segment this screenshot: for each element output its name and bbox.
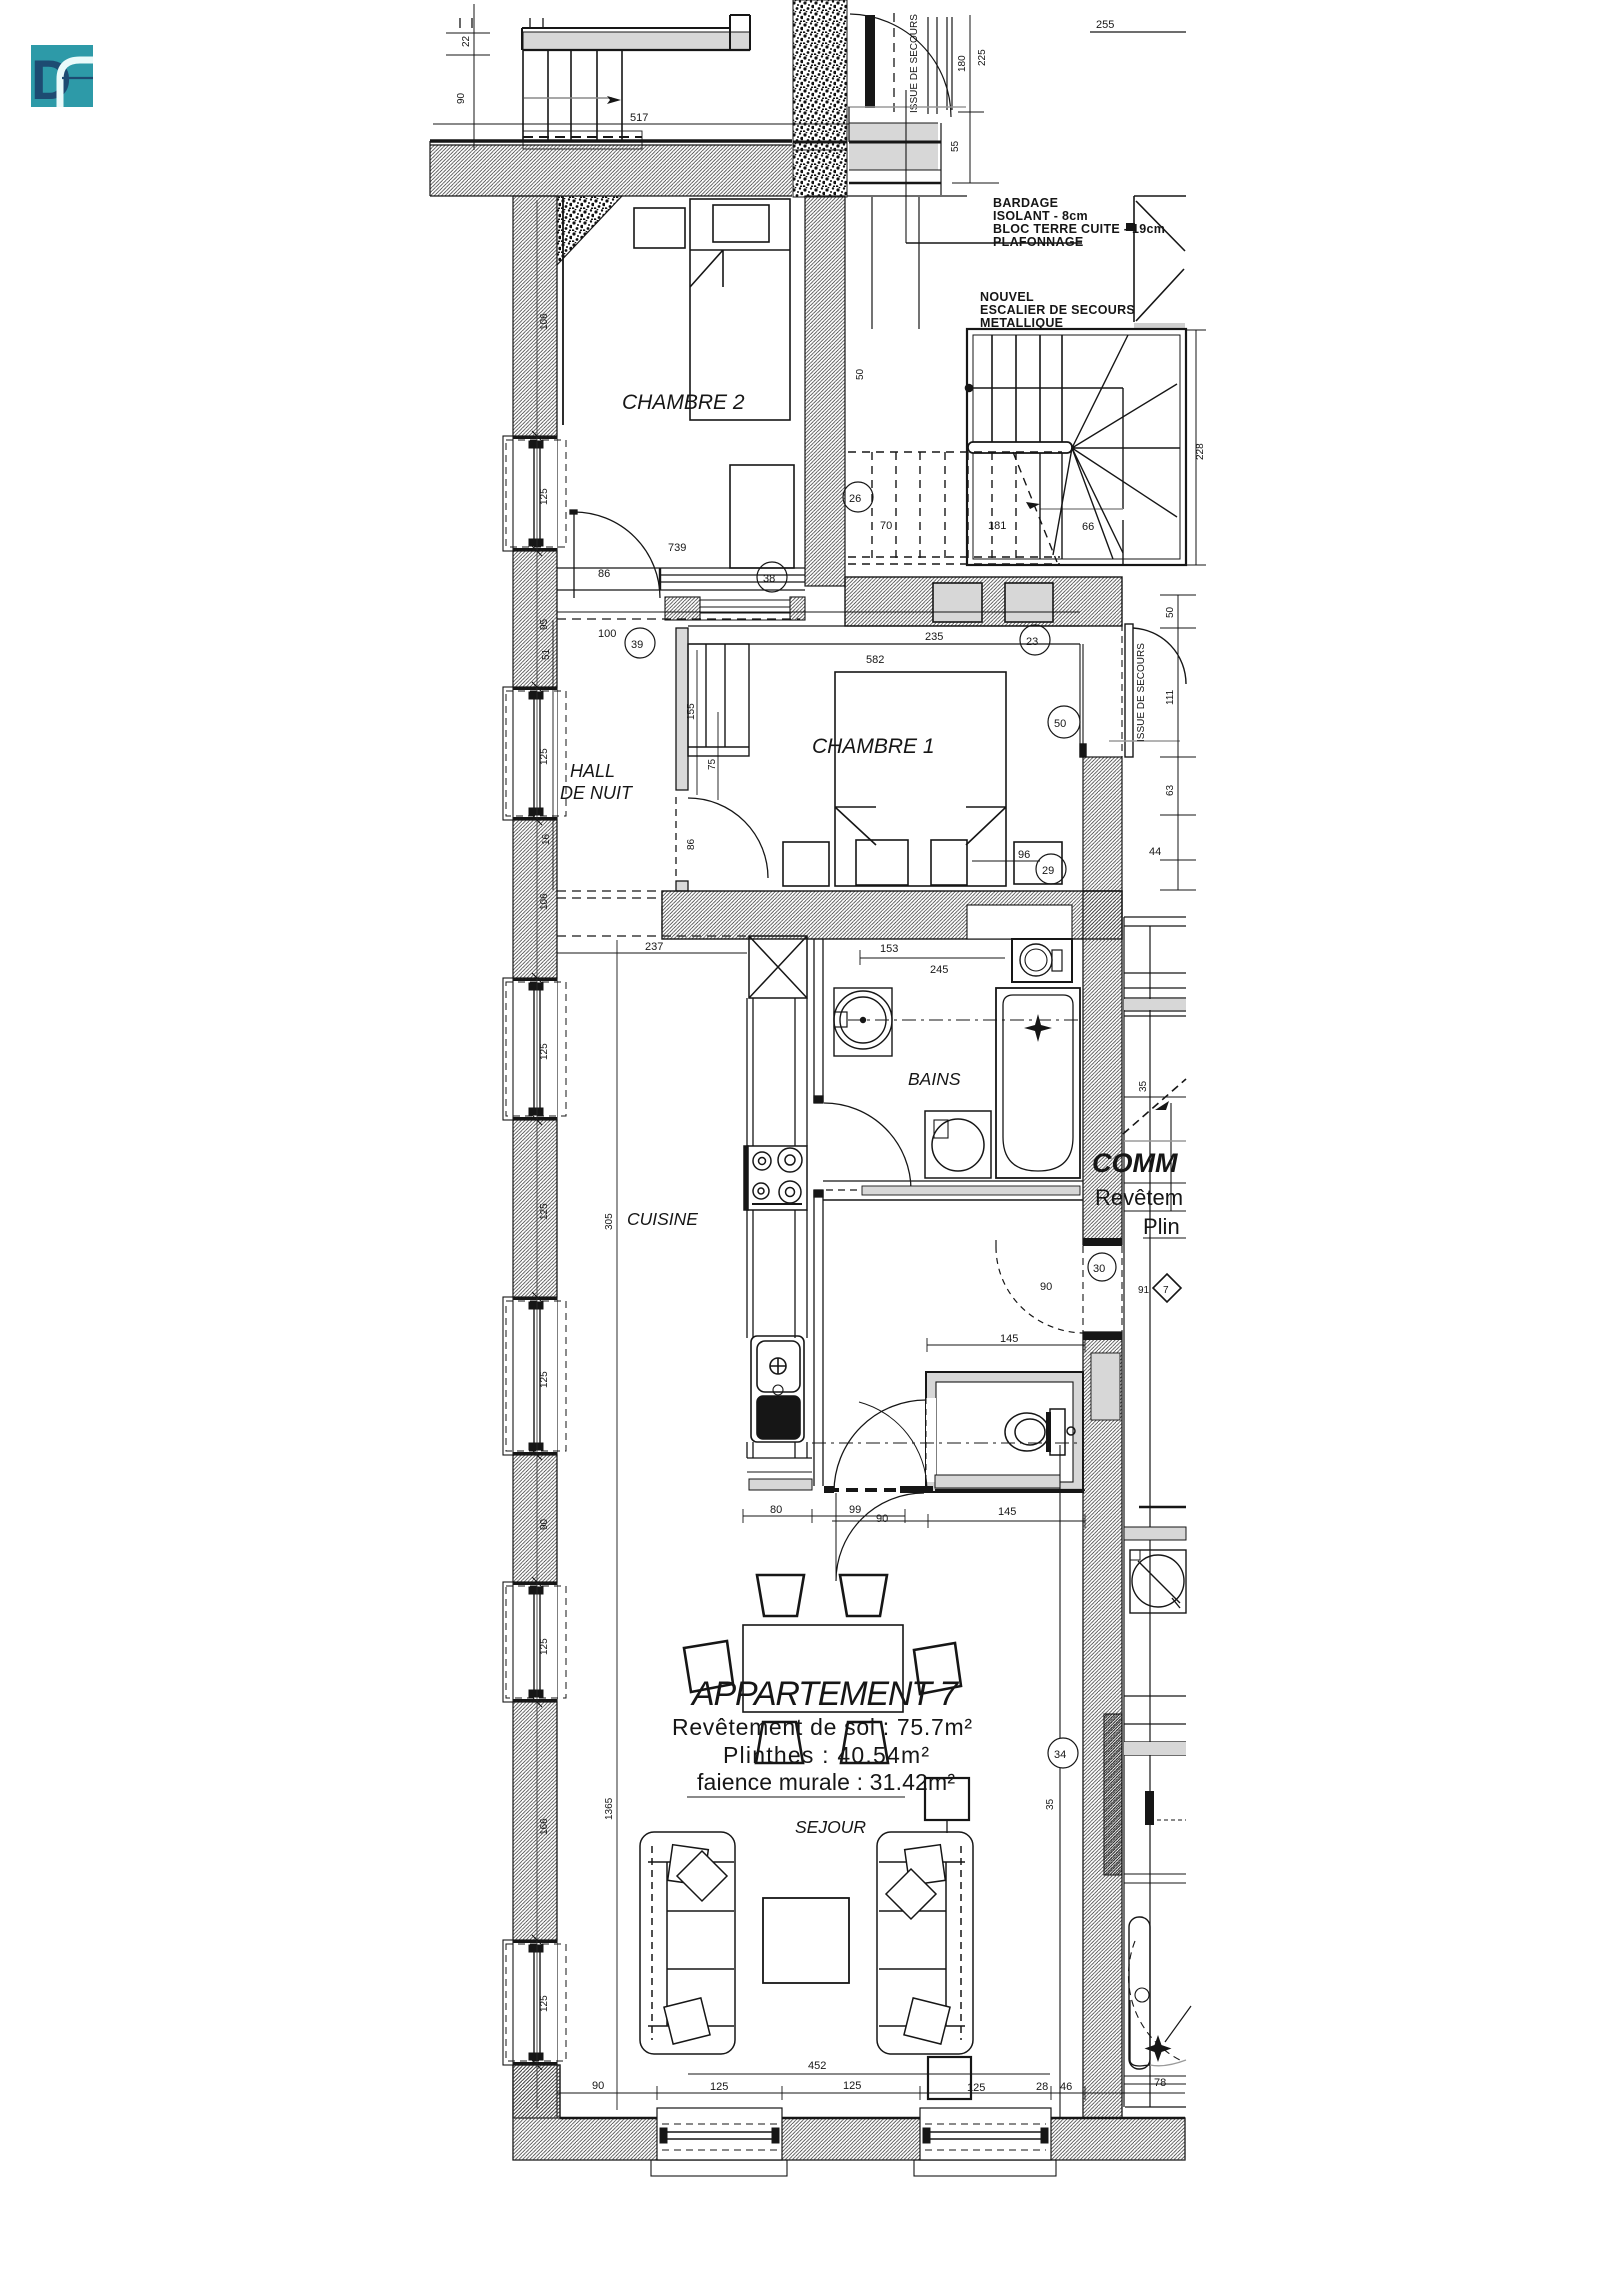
- svg-text:70: 70: [880, 520, 892, 532]
- svg-text:145: 145: [1000, 1333, 1018, 1345]
- svg-text:99: 99: [849, 1504, 861, 1516]
- svg-text:63: 63: [1165, 784, 1176, 796]
- svg-text:BLOC TERRE CUITE - 19cm: BLOC TERRE CUITE - 19cm: [993, 222, 1165, 236]
- svg-text:106: 106: [539, 313, 550, 330]
- svg-text:APPARTEMENT 7: APPARTEMENT 7: [690, 1675, 959, 1713]
- svg-text:452: 452: [808, 2060, 826, 2072]
- svg-text:78: 78: [1154, 2077, 1166, 2089]
- svg-text:225: 225: [977, 49, 988, 66]
- svg-text:90: 90: [876, 1513, 888, 1525]
- svg-text:35: 35: [1138, 1080, 1149, 1092]
- svg-text:55: 55: [950, 140, 961, 152]
- svg-text:582: 582: [866, 654, 884, 666]
- svg-text:155: 155: [686, 703, 697, 720]
- svg-text:DE NUIT: DE NUIT: [560, 783, 634, 803]
- svg-text:80: 80: [770, 1504, 782, 1516]
- svg-text:30: 30: [1093, 1263, 1105, 1275]
- svg-text:153: 153: [880, 943, 898, 955]
- svg-text:75: 75: [707, 758, 718, 770]
- svg-text:125: 125: [843, 2080, 861, 2092]
- svg-text:NOUVEL: NOUVEL: [980, 290, 1034, 304]
- svg-text:125: 125: [539, 1203, 550, 1220]
- svg-text:Revêtement de sol : 75.7m²: Revêtement de sol : 75.7m²: [672, 1714, 972, 1740]
- svg-text:180: 180: [957, 55, 968, 72]
- svg-text:34: 34: [1054, 1749, 1066, 1761]
- svg-text:90: 90: [456, 92, 467, 104]
- svg-text:145: 145: [998, 1506, 1016, 1518]
- svg-text:100: 100: [598, 628, 616, 640]
- svg-text:50: 50: [855, 368, 866, 380]
- svg-text:CUISINE: CUISINE: [627, 1209, 698, 1229]
- svg-text:29: 29: [1042, 865, 1054, 877]
- svg-text:111: 111: [1165, 689, 1176, 705]
- svg-text:28: 28: [1036, 2081, 1048, 2093]
- svg-text:86: 86: [686, 838, 697, 850]
- svg-text:ISSUE DE SECOURS: ISSUE DE SECOURS: [1136, 643, 1147, 742]
- svg-text:237: 237: [645, 941, 663, 953]
- svg-text:51: 51: [541, 648, 552, 660]
- svg-text:23: 23: [1026, 636, 1038, 648]
- svg-text:16: 16: [541, 833, 552, 845]
- svg-text:90: 90: [592, 2080, 604, 2092]
- svg-text:90: 90: [1040, 1281, 1052, 1293]
- svg-text:METALLIQUE: METALLIQUE: [980, 316, 1063, 330]
- svg-text:PLAFONNAGE: PLAFONNAGE: [993, 235, 1084, 249]
- svg-text:1365: 1365: [604, 1797, 615, 1820]
- svg-text:125: 125: [539, 748, 550, 765]
- svg-text:D: D: [31, 48, 71, 111]
- svg-text:125: 125: [539, 1371, 550, 1388]
- svg-text:181: 181: [988, 520, 1006, 532]
- svg-text:faience murale : 31.42m²: faience murale : 31.42m²: [697, 1769, 955, 1795]
- svg-text:90: 90: [539, 1518, 550, 1530]
- svg-text:26: 26: [849, 493, 861, 505]
- svg-text:Plinthes : 40.54m²: Plinthes : 40.54m²: [723, 1742, 929, 1768]
- svg-text:125: 125: [539, 488, 550, 505]
- svg-text:245: 245: [930, 964, 948, 976]
- svg-text:7: 7: [1163, 1285, 1169, 1296]
- svg-text:95: 95: [539, 618, 550, 630]
- svg-text:ESCALIER DE SECOURS: ESCALIER DE SECOURS: [980, 303, 1135, 317]
- svg-text:44: 44: [1149, 846, 1161, 858]
- svg-text:228: 228: [1195, 443, 1206, 460]
- svg-text:CHAMBRE 2: CHAMBRE 2: [622, 391, 745, 414]
- svg-text:166: 166: [539, 1818, 550, 1835]
- svg-text:BAINS: BAINS: [908, 1069, 961, 1089]
- svg-text:35: 35: [1045, 1798, 1056, 1810]
- svg-text:125: 125: [967, 2082, 985, 2094]
- svg-text:ISOLANT - 8cm: ISOLANT - 8cm: [993, 209, 1088, 223]
- svg-text:86: 86: [598, 568, 610, 580]
- svg-text:106: 106: [539, 893, 550, 910]
- svg-text:COMM: COMM: [1092, 1148, 1178, 1178]
- svg-text:Plin: Plin: [1143, 1214, 1180, 1239]
- svg-text:BARDAGE: BARDAGE: [993, 196, 1058, 210]
- svg-text:39: 39: [631, 639, 643, 651]
- svg-text:SEJOUR: SEJOUR: [795, 1817, 866, 1837]
- svg-text:517: 517: [630, 112, 648, 124]
- svg-text:Revêtem: Revêtem: [1095, 1185, 1183, 1210]
- svg-text:305: 305: [604, 1213, 615, 1230]
- svg-text:125: 125: [539, 1638, 550, 1655]
- svg-text:CHAMBRE 1: CHAMBRE 1: [812, 735, 935, 758]
- svg-text:66: 66: [1082, 521, 1094, 533]
- svg-text:96: 96: [1018, 849, 1030, 861]
- svg-text:22: 22: [461, 35, 472, 47]
- svg-text:ISSUE DE SECOURS: ISSUE DE SECOURS: [909, 14, 920, 113]
- svg-text:50: 50: [1165, 606, 1176, 618]
- svg-text:125: 125: [710, 2081, 728, 2093]
- svg-text:50: 50: [1054, 718, 1066, 730]
- svg-text:46: 46: [1060, 2081, 1072, 2093]
- svg-text:91: 91: [1138, 1285, 1150, 1296]
- svg-text:739: 739: [668, 542, 686, 554]
- svg-text:125: 125: [539, 1995, 550, 2012]
- svg-text:255: 255: [1096, 19, 1114, 31]
- svg-text:38: 38: [763, 573, 775, 585]
- svg-text:125: 125: [539, 1043, 550, 1060]
- svg-text:235: 235: [925, 631, 943, 643]
- svg-text:HALL: HALL: [570, 761, 615, 781]
